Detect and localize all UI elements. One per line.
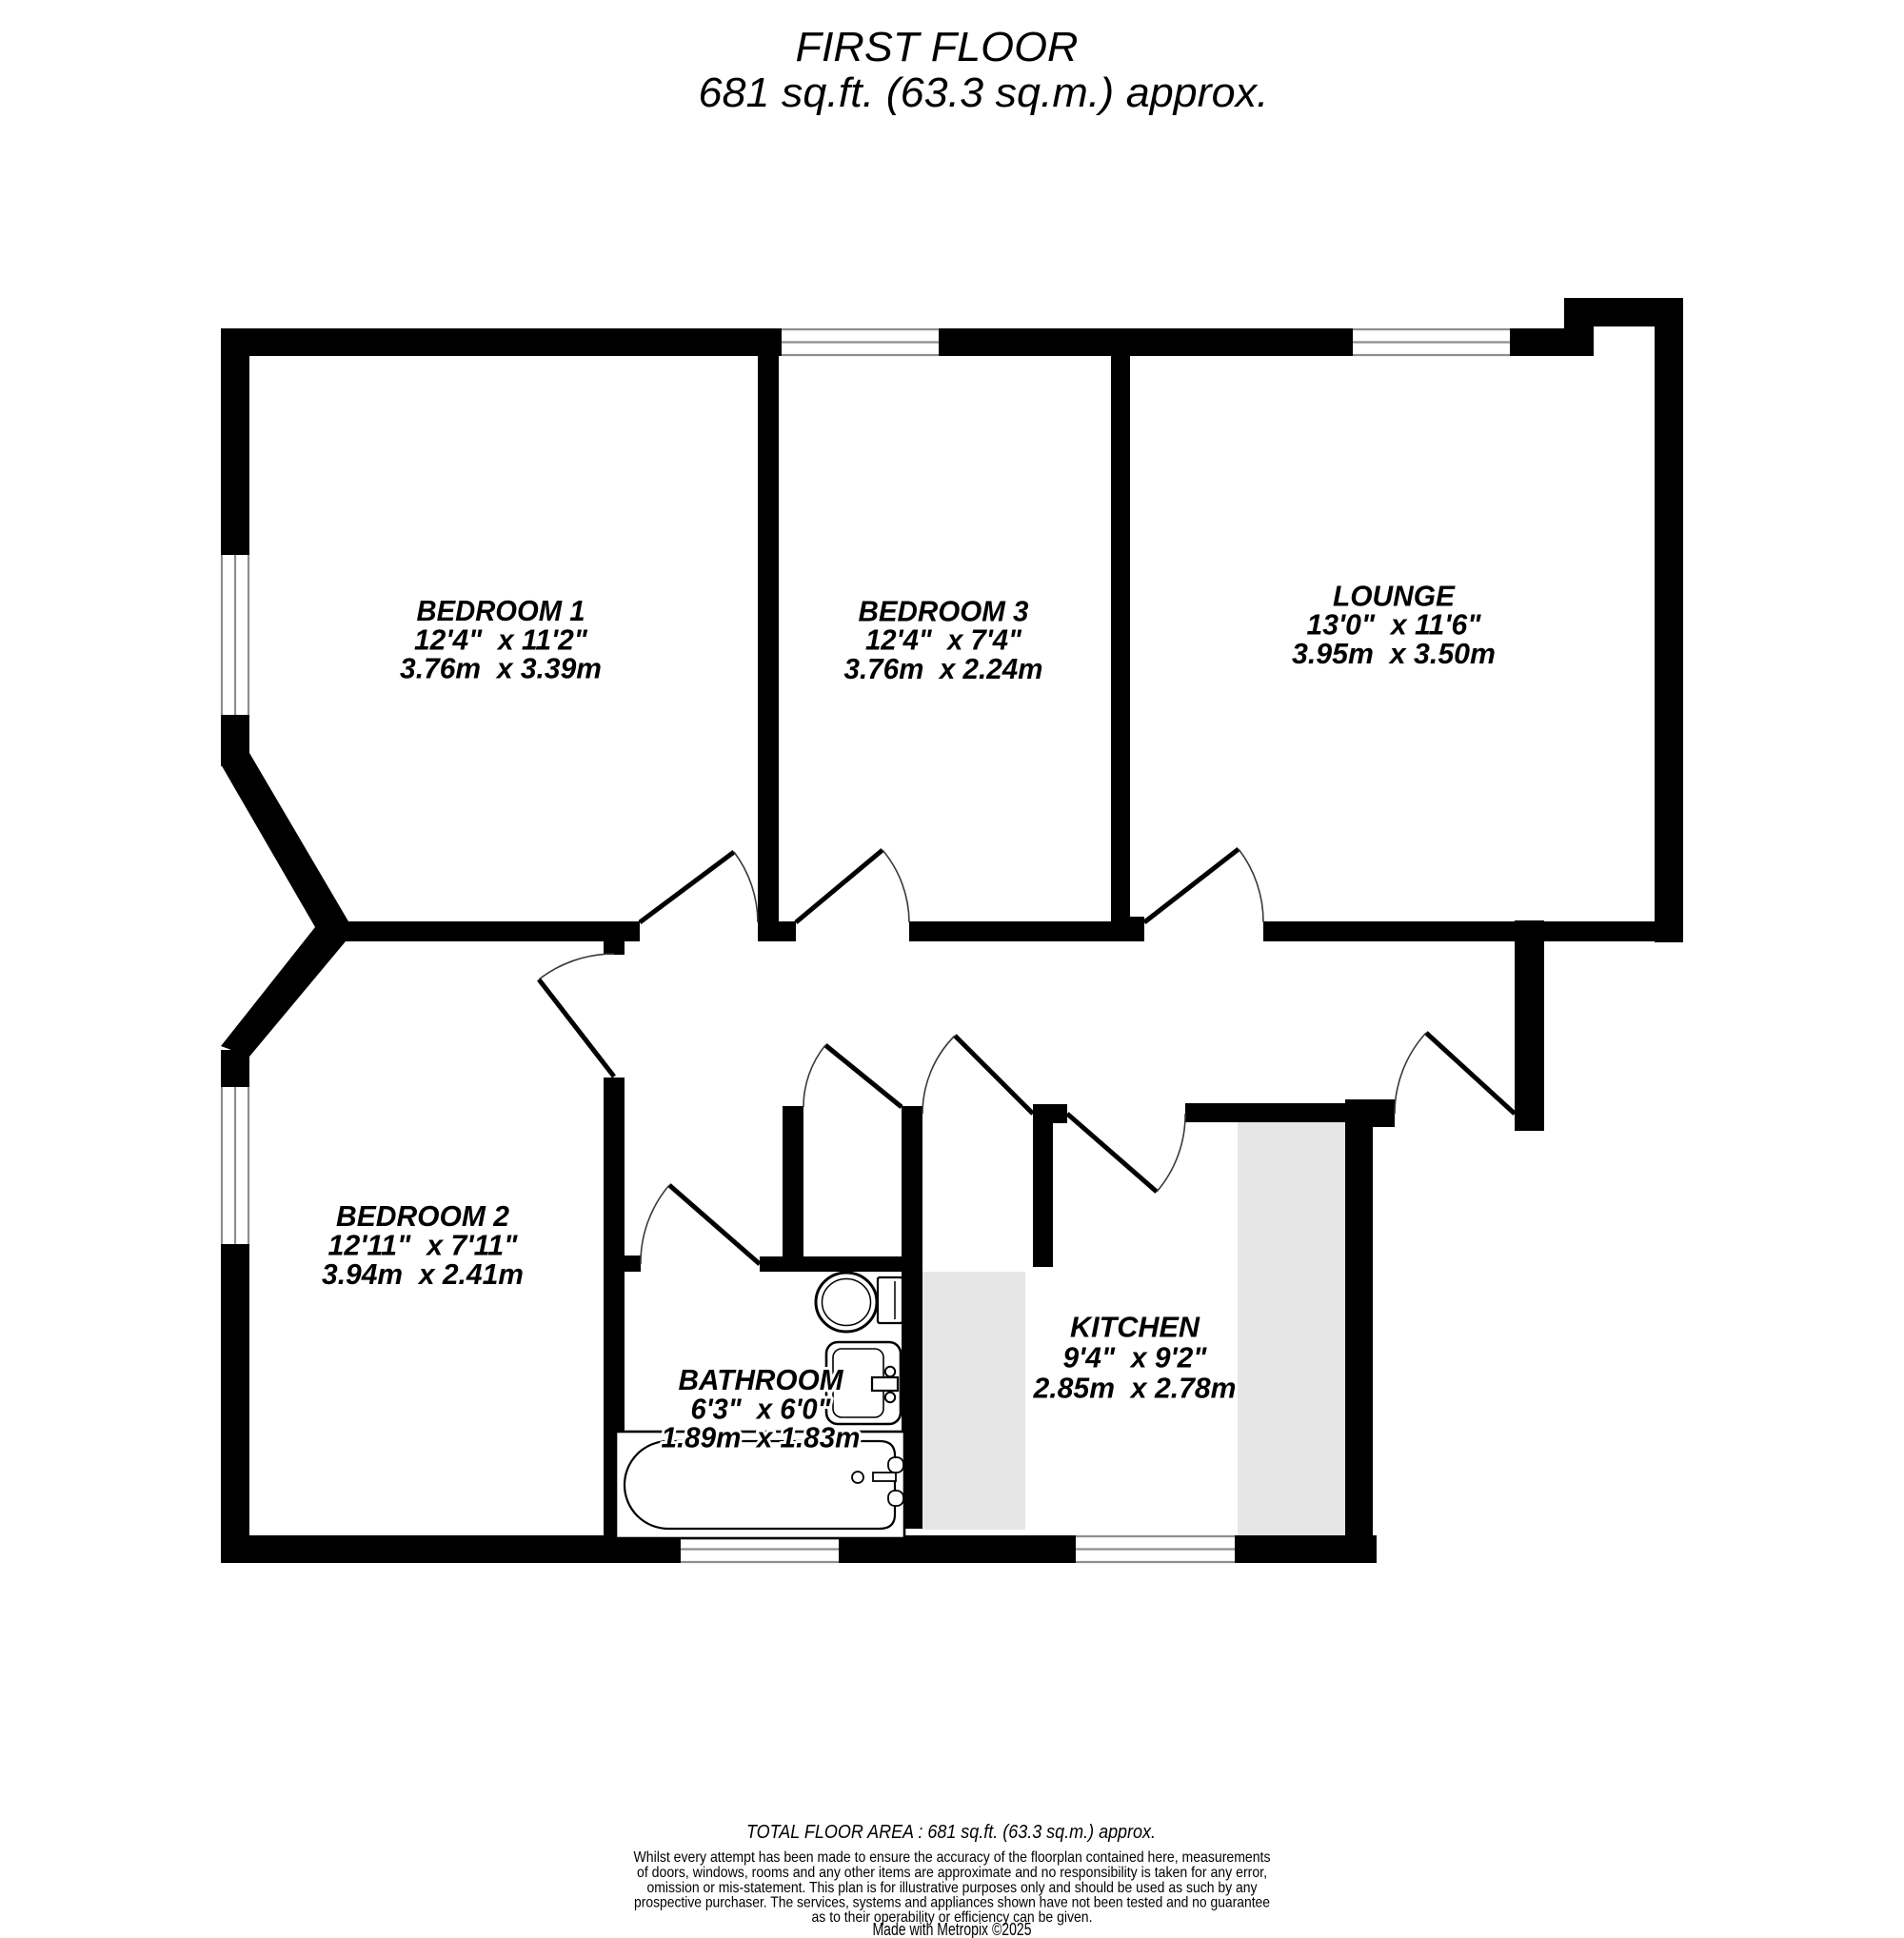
svg-text:6'3" x 6'0": 6'3" x 6'0" <box>691 1393 832 1425</box>
svg-text:12'4" x 11'2": 12'4" x 11'2" <box>414 623 588 656</box>
svg-text:Whilst every attempt has been: Whilst every attempt has been made to en… <box>634 1849 1271 1866</box>
svg-text:9'4" x 9'2": 9'4" x 9'2" <box>1063 1342 1208 1374</box>
svg-text:omission or mis-statement. Thi: omission or mis-statement. This plan is … <box>647 1880 1258 1896</box>
svg-text:Made with Metropix ©2025: Made with Metropix ©2025 <box>873 1919 1032 1938</box>
svg-text:of doors, windows, rooms and a: of doors, windows, rooms and any other i… <box>637 1865 1267 1881</box>
svg-text:LOUNGE: LOUNGE <box>1333 580 1457 612</box>
svg-text:3.76m x 2.24m: 3.76m x 2.24m <box>844 653 1043 685</box>
svg-text:2.85m x 2.78m: 2.85m x 2.78m <box>1033 1373 1237 1405</box>
svg-text:BEDROOM 1: BEDROOM 1 <box>417 595 585 627</box>
svg-text:BATHROOM: BATHROOM <box>679 1364 844 1396</box>
svg-text:1.89m x 1.83m: 1.89m x 1.83m <box>662 1422 861 1454</box>
svg-text:681 sq.ft. (63.3 sq.m.) approx: 681 sq.ft. (63.3 sq.m.) approx. <box>699 69 1269 116</box>
svg-text:12'11" x 7'11": 12'11" x 7'11" <box>328 1230 519 1262</box>
svg-text:3.76m x 3.39m: 3.76m x 3.39m <box>400 653 602 685</box>
svg-text:BEDROOM 2: BEDROOM 2 <box>336 1200 509 1233</box>
svg-text:prospective purchaser. The ser: prospective purchaser. The services, sys… <box>634 1895 1270 1911</box>
svg-text:12'4" x 7'4": 12'4" x 7'4" <box>865 624 1022 657</box>
svg-text:3.95m x 3.50m: 3.95m x 3.50m <box>1292 638 1496 670</box>
svg-text:TOTAL FLOOR AREA : 681 sq.ft.: TOTAL FLOOR AREA : 681 sq.ft. (63.3 sq.m… <box>746 1822 1156 1843</box>
svg-text:3.94m x 2.41m: 3.94m x 2.41m <box>322 1258 524 1291</box>
svg-text:KITCHEN: KITCHEN <box>1070 1312 1200 1344</box>
svg-text:BEDROOM 3: BEDROOM 3 <box>859 595 1029 627</box>
svg-text:FIRST FLOOR: FIRST FLOOR <box>796 24 1079 70</box>
svg-text:13'0" x 11'6": 13'0" x 11'6" <box>1307 609 1482 642</box>
